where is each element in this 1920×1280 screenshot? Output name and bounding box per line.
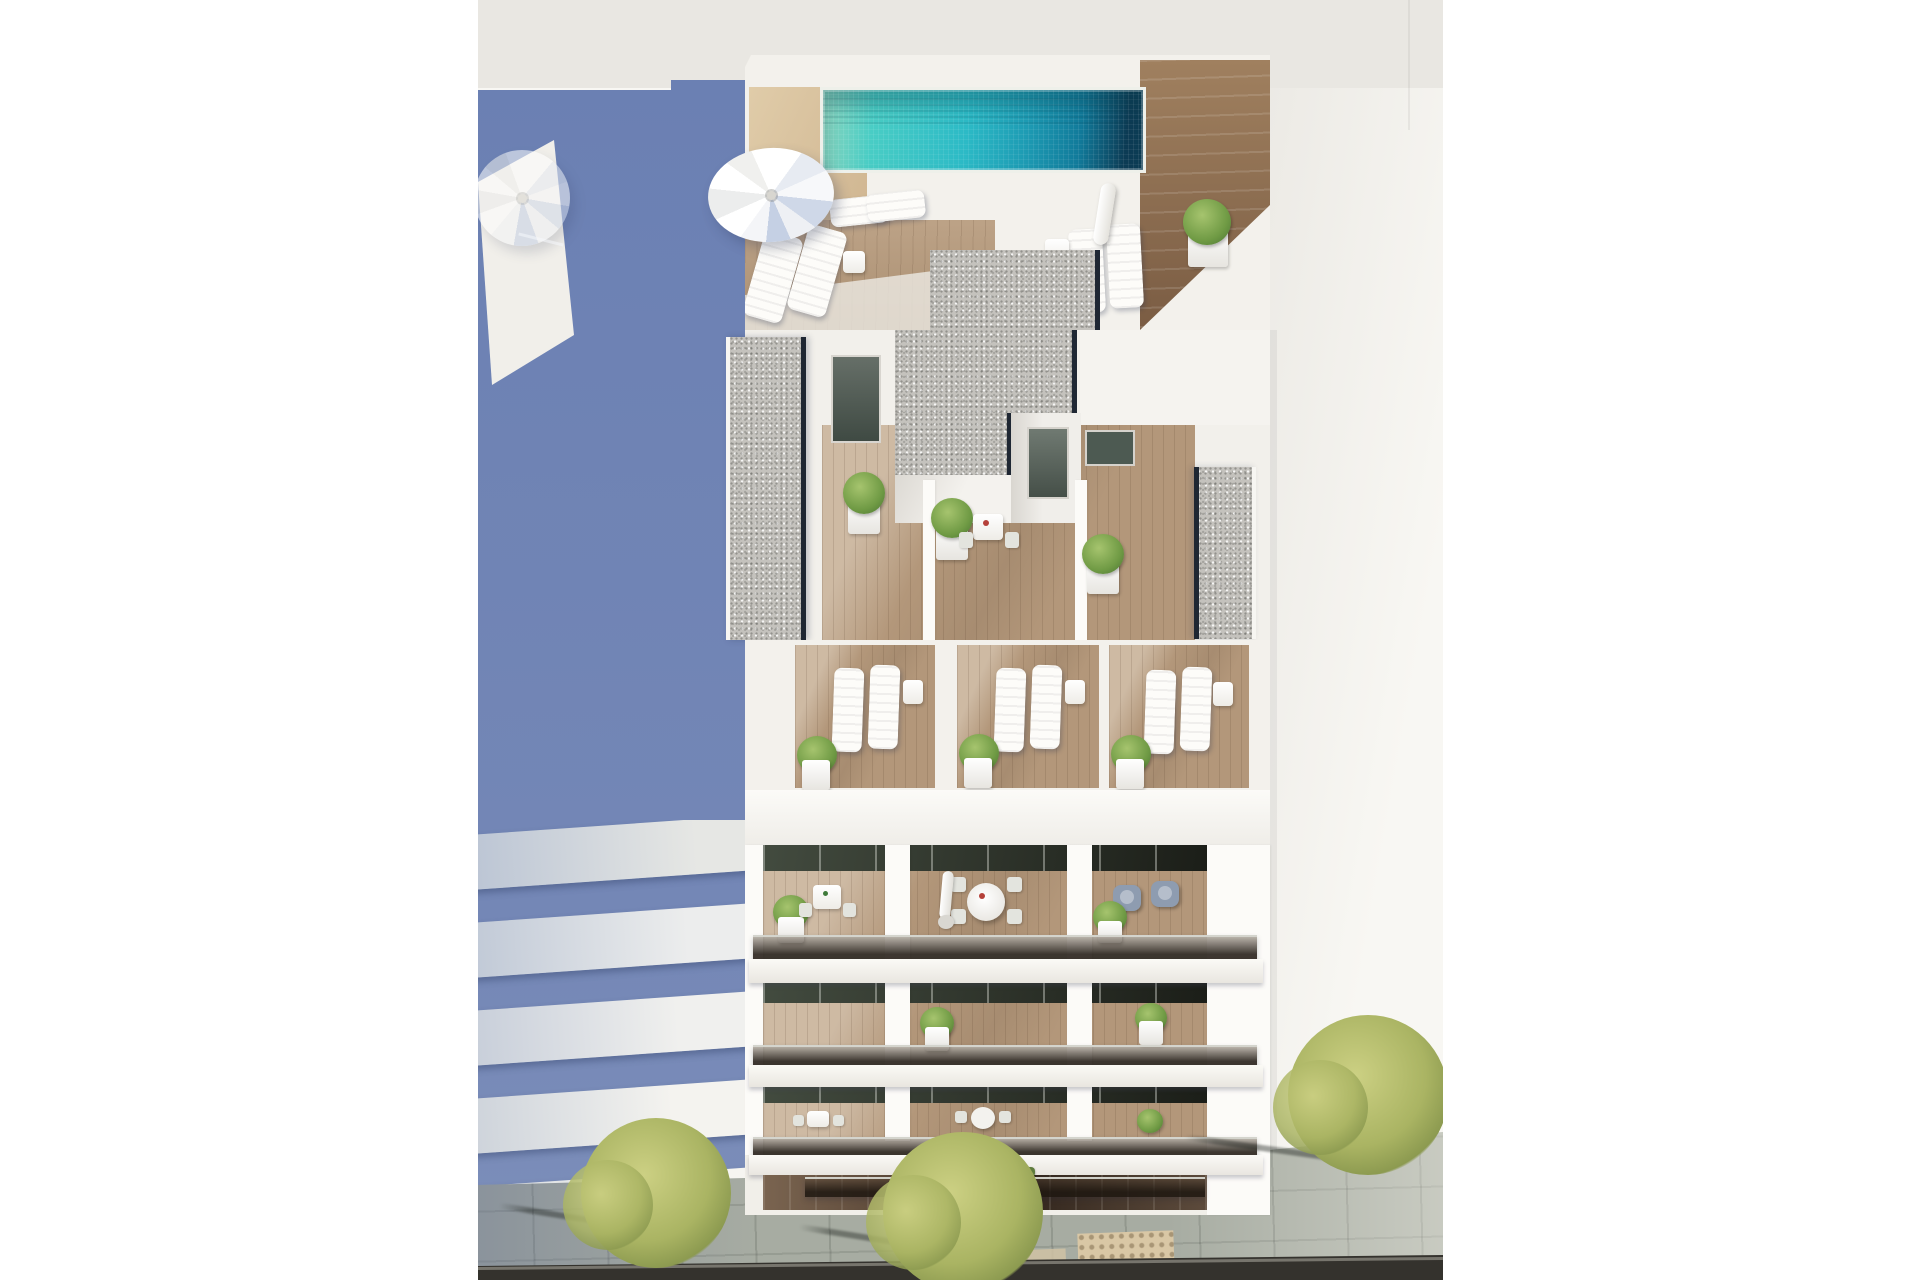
glass-balustrade [753, 1045, 1257, 1067]
gravel-roof-central-leg [895, 413, 1011, 475]
balcony-slab [478, 820, 746, 890]
street-tree-cluster [866, 1175, 961, 1270]
balcony-pot [1139, 1021, 1163, 1045]
bay-pot [802, 760, 830, 790]
balcony-slab-edge [749, 1065, 1263, 1087]
sun-lounger [832, 668, 865, 753]
bistro-chair [1005, 532, 1019, 548]
terrace-shrub [843, 472, 885, 514]
render-photo-area [478, 0, 1443, 1280]
glass-doors-row [763, 983, 1207, 1003]
gravel-strip-right [1194, 467, 1256, 639]
terrace-shrub [1082, 534, 1124, 574]
chair [999, 1111, 1011, 1123]
bay-pot [1116, 759, 1144, 789]
chair [843, 903, 856, 917]
square-table [813, 885, 841, 909]
bay-pot [964, 758, 992, 788]
bistro-table [973, 514, 1003, 540]
parapet-band [745, 790, 1270, 847]
table-accent [823, 891, 828, 896]
table-accent [979, 893, 985, 899]
gravel-strip-left [726, 337, 806, 640]
chair [1007, 877, 1022, 892]
partition-wall [923, 480, 935, 650]
planter-shrub [1183, 199, 1231, 245]
round-table [967, 883, 1005, 921]
pool-ripples [823, 98, 1143, 124]
building-edge-shadow [1270, 330, 1277, 1150]
terrace-door [1027, 427, 1069, 499]
balcony-slab [478, 903, 746, 979]
chair [833, 1115, 844, 1126]
balcony-shrub [1137, 1109, 1163, 1133]
sun-lounger [1030, 665, 1063, 750]
parasol-base [938, 915, 954, 929]
side-table [1065, 680, 1085, 704]
glass-balustrade [753, 935, 1257, 961]
small-table [807, 1111, 829, 1127]
facade-pillar [1067, 845, 1092, 1141]
right-roof-shade [1268, 88, 1443, 1148]
chair [955, 1111, 967, 1123]
table-accent [983, 520, 989, 526]
sun-lounger [994, 668, 1027, 753]
facade-pillar [885, 845, 910, 1141]
architectural-render [0, 0, 1920, 1280]
swimming-pool [820, 87, 1146, 173]
street-tree-cluster [1273, 1060, 1368, 1155]
facade-pillar [745, 845, 763, 1155]
street-tree-cluster [563, 1160, 653, 1250]
chair [799, 903, 812, 917]
round-table [971, 1107, 995, 1129]
ghost-parasol [478, 150, 570, 246]
balcony-slab-edge [749, 959, 1263, 983]
sun-lounger [1180, 667, 1213, 752]
side-table [843, 251, 865, 273]
armchair [1151, 881, 1179, 907]
chair [793, 1115, 804, 1126]
terrace-door [1085, 430, 1135, 466]
balcony-slab [478, 991, 746, 1067]
side-table [1213, 682, 1233, 706]
wall-upper-right [1080, 330, 1270, 425]
sun-lounger [1106, 223, 1144, 309]
glass-doors-row [763, 1087, 1207, 1103]
glass-doors-row [763, 845, 1207, 871]
sun-lounger [868, 665, 901, 750]
bistro-chair [959, 532, 973, 548]
side-table [903, 680, 923, 704]
sun-lounger [866, 189, 927, 223]
sun-lounger [1144, 670, 1177, 755]
chair [1007, 909, 1022, 924]
right-roof-seam [1408, 0, 1410, 130]
upper-terrace-level [745, 330, 1270, 650]
gravel-roof-central [895, 330, 1077, 413]
gravel-roof-upper [930, 250, 1100, 330]
lounger-level [745, 640, 1270, 845]
terrace-door [831, 355, 881, 443]
